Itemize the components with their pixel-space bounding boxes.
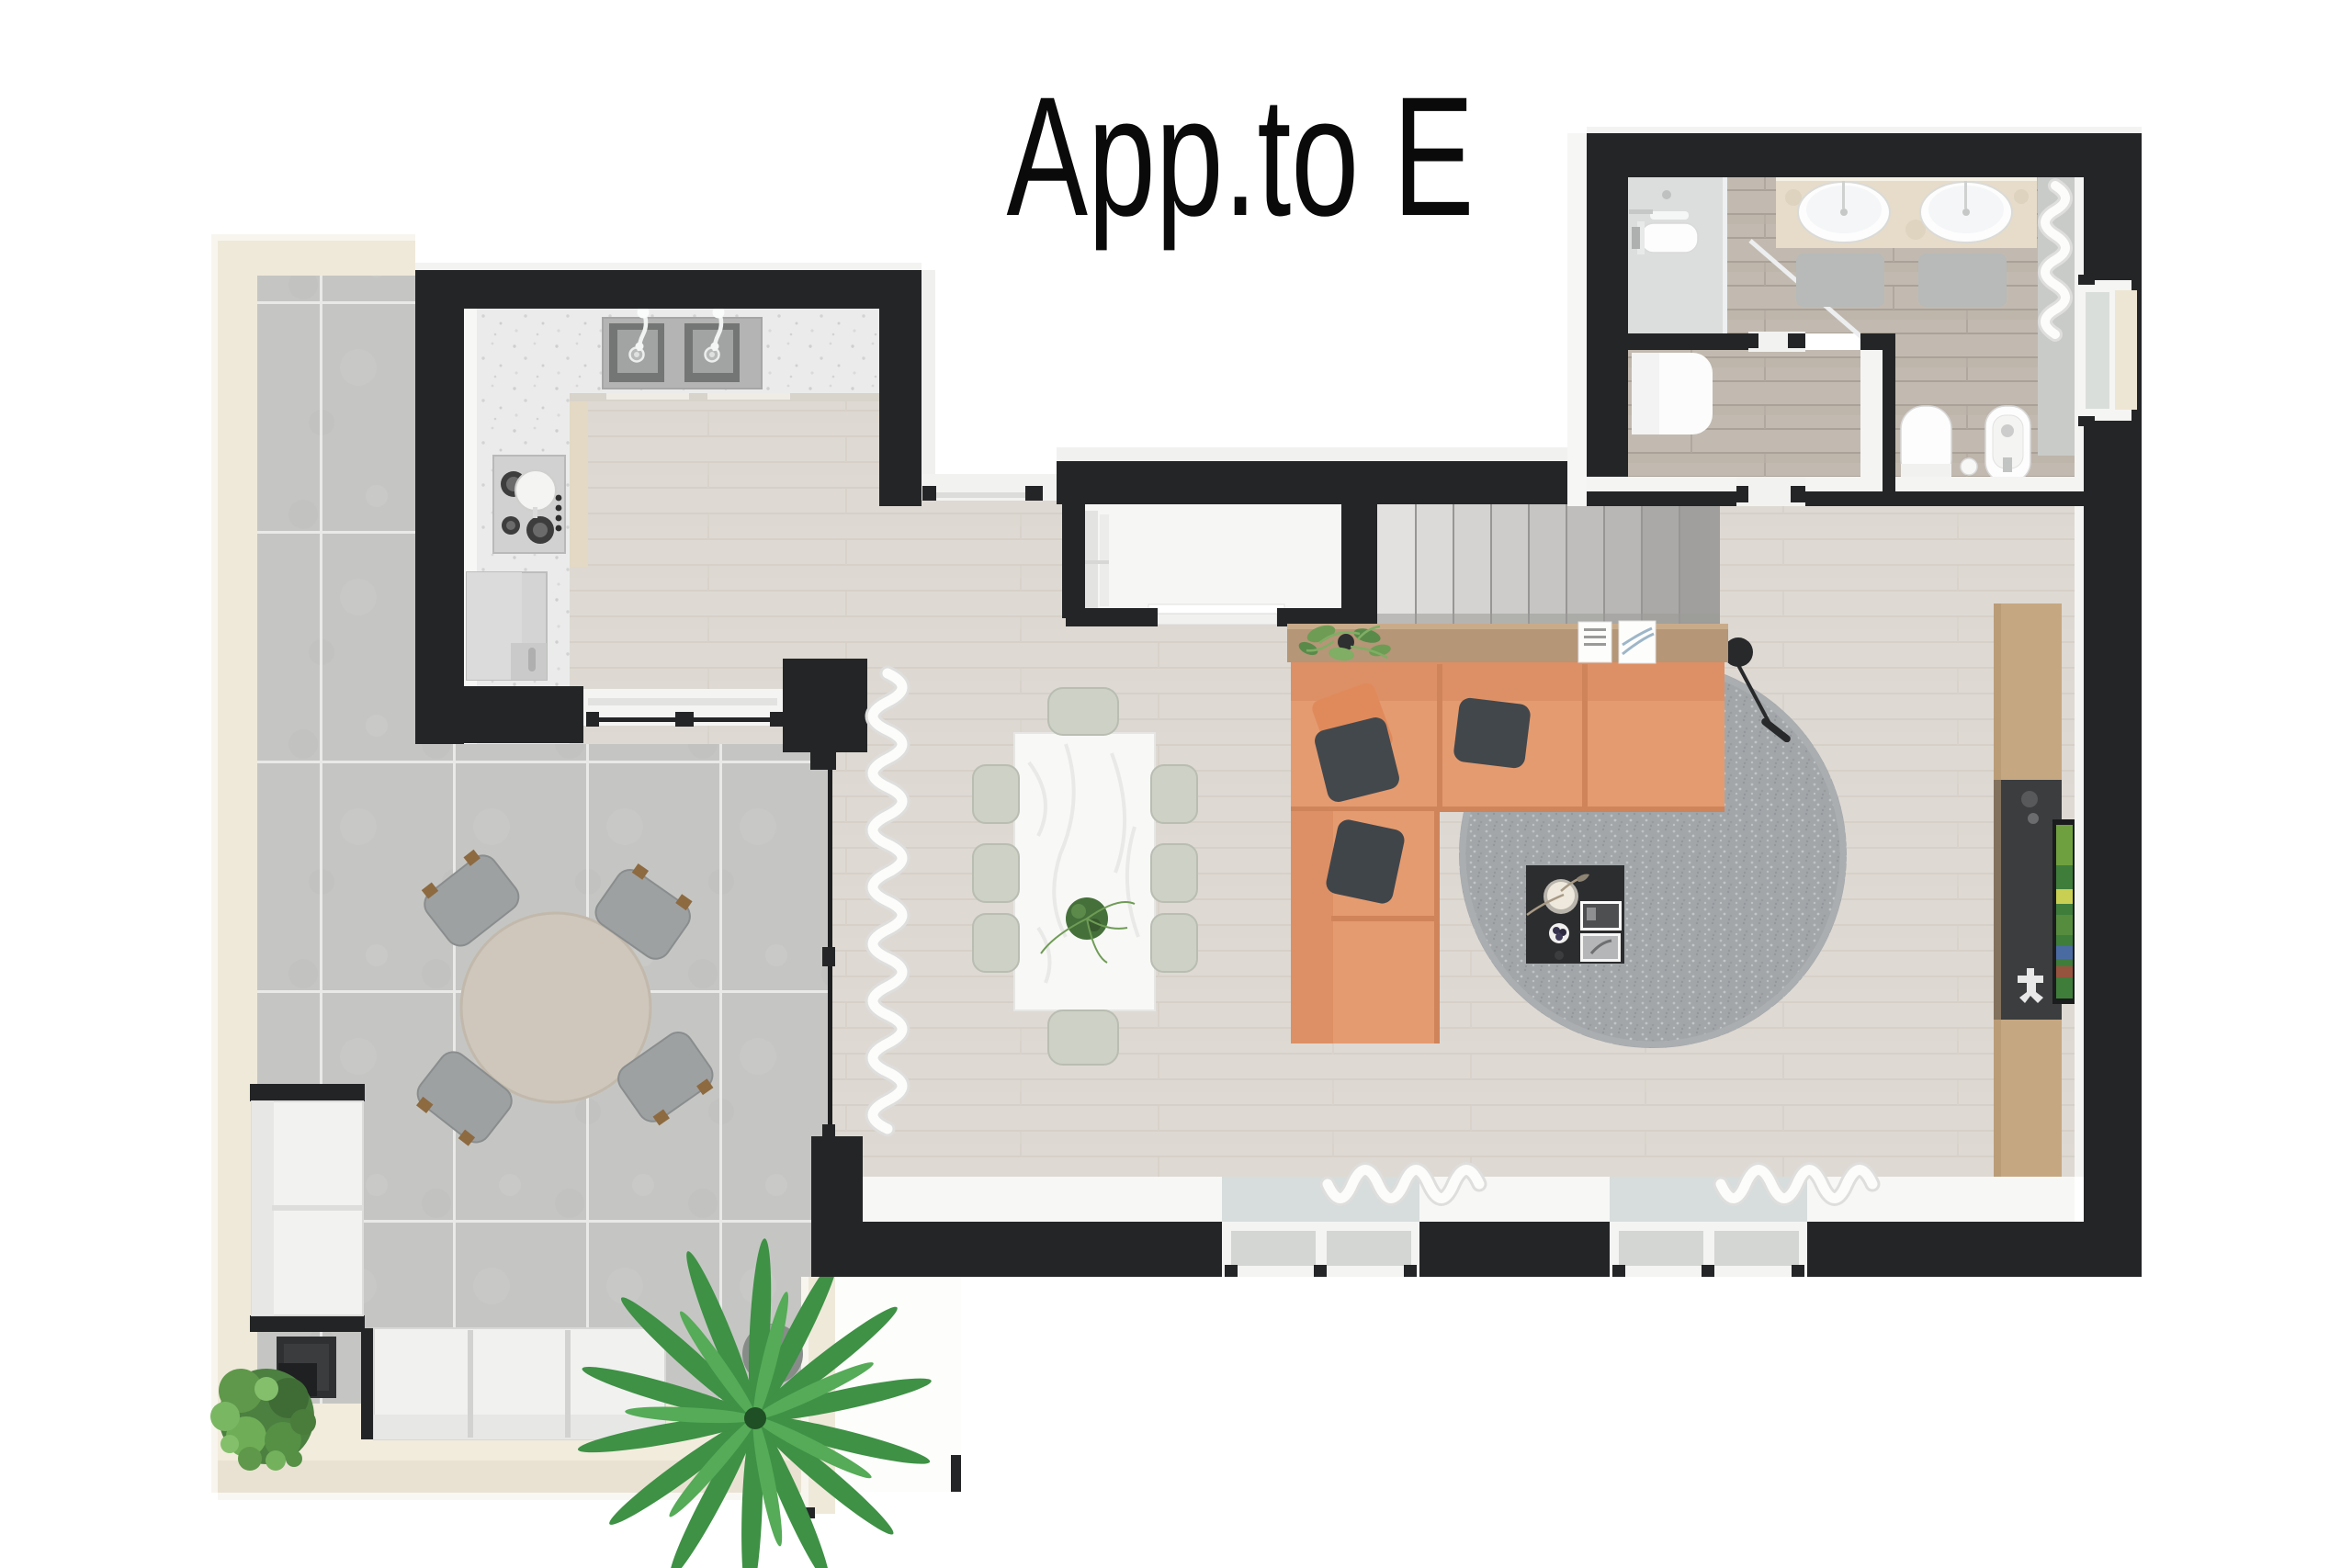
svg-text:App.to E: App.to E [1007,62,1475,252]
